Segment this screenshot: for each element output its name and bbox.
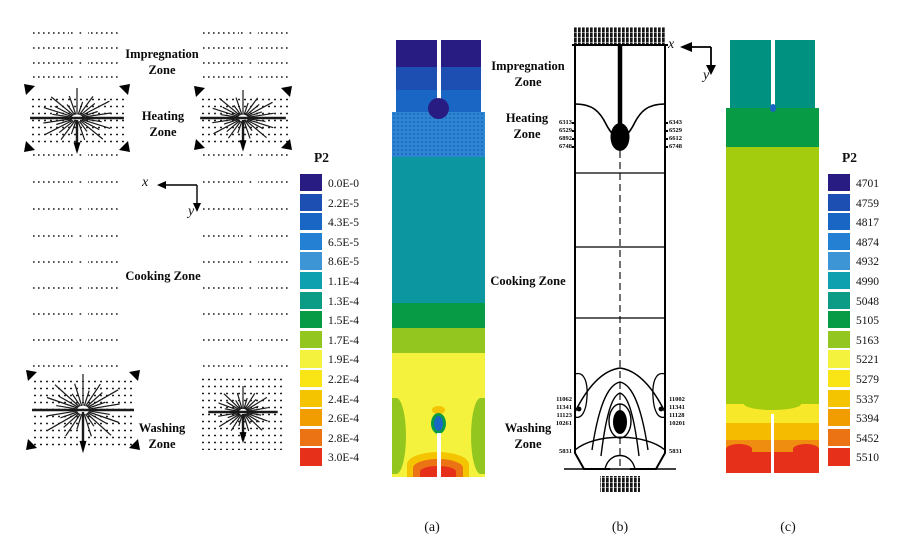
legend-value-label: 1.9E-4 bbox=[328, 354, 359, 366]
panel-c-wave-red-left bbox=[726, 444, 752, 454]
legend-color-swatch bbox=[300, 350, 322, 367]
legend-value-label: 5394 bbox=[856, 413, 879, 425]
contour-label: 10261 bbox=[546, 420, 572, 428]
legend-color-swatch bbox=[828, 370, 850, 387]
legend-entry: 5279 bbox=[828, 370, 879, 390]
legend-value-label: 5048 bbox=[856, 296, 879, 308]
heating-contour-labels-right: 6343652966126748 bbox=[669, 119, 693, 151]
panel-c-wave-yellow bbox=[744, 398, 801, 410]
legend-value-label: 4990 bbox=[856, 276, 879, 288]
panel-c-band-yellowgreen bbox=[726, 147, 819, 404]
panel-a-bottom-pipe bbox=[437, 433, 441, 477]
legend-entry: 6.5E-5 bbox=[300, 233, 359, 253]
panel-a-center-pipe bbox=[437, 40, 441, 106]
legend-entry: 1.1E-4 bbox=[300, 272, 359, 292]
legend-color-swatch bbox=[828, 292, 850, 309]
legend-entry: 4990 bbox=[828, 272, 879, 292]
legend-value-label: 0.0E-0 bbox=[328, 178, 359, 190]
contour-label: 10201 bbox=[669, 420, 695, 428]
panel-c-wave-red-right bbox=[793, 444, 819, 454]
contour-label: 11341 bbox=[546, 404, 572, 412]
legend-color-swatch bbox=[300, 409, 322, 426]
legend-color-swatch bbox=[300, 213, 322, 230]
legend-entry: 2.8E-4 bbox=[300, 429, 359, 449]
contour-label: 6892 bbox=[549, 135, 572, 143]
legend-color-swatch bbox=[828, 311, 850, 328]
legend-color-swatch bbox=[828, 448, 850, 465]
legend-entry: 5337 bbox=[828, 390, 879, 410]
legend-color-swatch bbox=[828, 272, 850, 289]
legend-entry: 2.2E-5 bbox=[300, 194, 359, 214]
legend-entry: 4701 bbox=[828, 174, 879, 194]
legend-color-swatch bbox=[300, 272, 322, 289]
legend-value-label: 5105 bbox=[856, 315, 879, 327]
washing-center-blob bbox=[613, 410, 627, 434]
legend-color-swatch bbox=[300, 331, 322, 348]
legend-color-swatch bbox=[300, 448, 322, 465]
legend-value-label: 5452 bbox=[856, 433, 879, 445]
legend-entry: 2.4E-4 bbox=[300, 390, 359, 410]
legend-color-swatch bbox=[828, 390, 850, 407]
legend-value-label: 5279 bbox=[856, 374, 879, 386]
legend-color-swatch bbox=[300, 174, 322, 191]
washing-contour-labels-right: 11002113411112810201 bbox=[669, 396, 695, 428]
caption-a: (a) bbox=[402, 520, 462, 536]
legend-c-title: P2 bbox=[842, 150, 879, 166]
panel-c-contour-plot bbox=[726, 40, 819, 473]
legend-value-label: 1.1E-4 bbox=[328, 276, 359, 288]
panel-c-center-pipe bbox=[771, 40, 775, 108]
legend-value-label: 2.8E-4 bbox=[328, 433, 359, 445]
caption-c: (c) bbox=[758, 520, 818, 536]
x-axis-label: x bbox=[668, 37, 674, 53]
arrow-left-icon bbox=[157, 181, 166, 189]
legend-value-label: 5510 bbox=[856, 452, 879, 464]
legend-value-label: 2.4E-4 bbox=[328, 394, 359, 406]
legend-entry: 2.6E-4 bbox=[300, 409, 359, 429]
legend-value-label: 6.5E-5 bbox=[328, 237, 359, 249]
legend-c-entries: 4701475948174874493249905048510551635221… bbox=[828, 174, 879, 468]
heating-contour-labels-left: 6313652968926748 bbox=[549, 119, 572, 151]
legend-color-swatch bbox=[300, 370, 322, 387]
legend-entry: 1.7E-4 bbox=[300, 331, 359, 351]
legend-c: P2 4701475948174874493249905048510551635… bbox=[828, 150, 879, 468]
legend-entry: 5510 bbox=[828, 448, 879, 468]
legend-value-label: 2.6E-4 bbox=[328, 413, 359, 425]
contour-label: 11002 bbox=[669, 396, 695, 404]
contour-label: 6612 bbox=[669, 135, 693, 143]
legend-entry: 5163 bbox=[828, 331, 879, 351]
legend-color-swatch bbox=[828, 409, 850, 426]
legend-value-label: 1.5E-4 bbox=[328, 315, 359, 327]
figure-canvas: Impregnation Zone Heating Zone Cooking Z… bbox=[0, 0, 900, 550]
legend-value-label: 3.0E-4 bbox=[328, 452, 359, 464]
legend-value-label: 4932 bbox=[856, 256, 879, 268]
legend-entry: 4932 bbox=[828, 252, 879, 272]
axis-indicator bbox=[0, 0, 300, 300]
legend-value-label: 1.7E-4 bbox=[328, 335, 359, 347]
legend-value-label: 5337 bbox=[856, 394, 879, 406]
contour-label: 6343 bbox=[669, 119, 693, 127]
panel-c-bottom-pipe bbox=[771, 414, 774, 473]
legend-value-label: 4817 bbox=[856, 217, 879, 229]
legend-entry: 8.6E-5 bbox=[300, 252, 359, 272]
y-axis-label: y bbox=[188, 204, 194, 220]
legend-color-swatch bbox=[828, 331, 850, 348]
legend-entry: 5105 bbox=[828, 311, 879, 331]
legend-entry: 5452 bbox=[828, 429, 879, 449]
bottom-outlet-numbers-band bbox=[600, 476, 640, 492]
legend-value-label: 8.6E-5 bbox=[328, 256, 359, 268]
panel-a-extraction-oval bbox=[431, 413, 446, 434]
legend-color-swatch bbox=[828, 350, 850, 367]
legend-color-swatch bbox=[828, 429, 850, 446]
legend-color-swatch bbox=[828, 194, 850, 211]
legend-a: P2 0.0E-02.2E-54.3E-56.5E-58.6E-51.1E-41… bbox=[300, 150, 359, 468]
legend-entry: 4874 bbox=[828, 233, 879, 253]
legend-value-label: 5221 bbox=[856, 354, 879, 366]
legend-entry: 5394 bbox=[828, 409, 879, 429]
legend-color-swatch bbox=[300, 233, 322, 250]
legend-value-label: 2.2E-5 bbox=[328, 198, 359, 210]
legend-value-label: 4874 bbox=[856, 237, 879, 249]
panel-c-band-darkgreen bbox=[726, 108, 819, 147]
legend-value-label: 4701 bbox=[856, 178, 879, 190]
arrow-left-icon bbox=[680, 42, 692, 52]
contour-label: 11123 bbox=[546, 412, 572, 420]
legend-color-swatch bbox=[828, 252, 850, 269]
panel-a-contour-plot bbox=[392, 40, 485, 477]
panel-a-pipe-tip-circle bbox=[428, 98, 449, 119]
legend-color-swatch bbox=[300, 311, 322, 328]
contour-label: 6529 bbox=[669, 127, 693, 135]
legend-entry: 0.0E-0 bbox=[300, 174, 359, 194]
contour-label: 11062 bbox=[546, 396, 572, 404]
legend-value-label: 4.3E-5 bbox=[328, 217, 359, 229]
legend-value-label: 5163 bbox=[856, 335, 879, 347]
zone-label-washing: Washing Zone bbox=[112, 420, 212, 453]
legend-color-swatch bbox=[828, 233, 850, 250]
legend-entry: 3.0E-4 bbox=[300, 448, 359, 468]
legend-entry: 4759 bbox=[828, 194, 879, 214]
legend-color-swatch bbox=[300, 194, 322, 211]
legend-color-swatch bbox=[828, 174, 850, 191]
legend-entry: 4.3E-5 bbox=[300, 213, 359, 233]
legend-a-entries: 0.0E-02.2E-54.3E-56.5E-58.6E-51.1E-41.3E… bbox=[300, 174, 359, 468]
panel-a-band-yellowgreen bbox=[392, 328, 485, 353]
legend-color-swatch bbox=[300, 292, 322, 309]
contour-label: 6313 bbox=[549, 119, 572, 127]
contour-label: 6748 bbox=[669, 143, 693, 151]
y-axis-label: y bbox=[703, 68, 709, 84]
caption-b: (b) bbox=[590, 520, 650, 536]
legend-entry: 5221 bbox=[828, 350, 879, 370]
legend-value-label: 2.2E-4 bbox=[328, 374, 359, 386]
legend-color-swatch bbox=[300, 252, 322, 269]
legend-color-swatch bbox=[300, 390, 322, 407]
legend-color-swatch bbox=[300, 429, 322, 446]
legend-entry: 1.5E-4 bbox=[300, 311, 359, 331]
contour-label: 11341 bbox=[669, 404, 695, 412]
panel-a-band-green bbox=[392, 303, 485, 328]
legend-entry: 1.3E-4 bbox=[300, 292, 359, 312]
legend-value-label: 4759 bbox=[856, 198, 879, 210]
legend-entry: 2.2E-4 bbox=[300, 370, 359, 390]
panel-c-pipe-tip-dot bbox=[770, 104, 776, 112]
legend-a-title: P2 bbox=[314, 150, 359, 166]
washing-contour-labels-left: 11062113411112310261 bbox=[546, 396, 572, 428]
legend-entry: 5048 bbox=[828, 292, 879, 312]
legend-entry: 4817 bbox=[828, 213, 879, 233]
contour-label: 5831 bbox=[551, 448, 572, 456]
legend-entry: 1.9E-4 bbox=[300, 350, 359, 370]
legend-color-swatch bbox=[828, 213, 850, 230]
contour-label: 6529 bbox=[549, 127, 572, 135]
x-axis-label: x bbox=[142, 175, 148, 191]
pipe-tip-blob bbox=[611, 123, 630, 151]
contour-label: 11128 bbox=[669, 412, 695, 420]
contour-label: 5831 bbox=[669, 448, 693, 456]
legend-value-label: 1.3E-4 bbox=[328, 296, 359, 308]
contour-label: 6748 bbox=[549, 143, 572, 151]
